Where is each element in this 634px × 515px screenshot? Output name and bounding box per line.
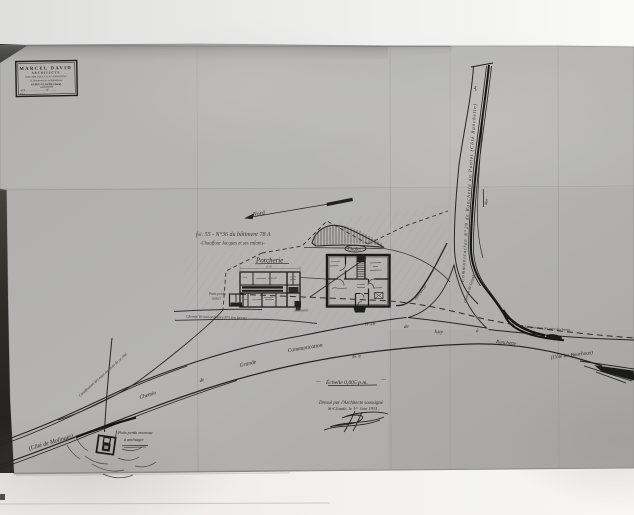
svg-text:SAINT-CLAUDE (Jura): SAINT-CLAUDE (Jura) <box>31 82 61 87</box>
svg-text:Puits perdu: Puits perdu <box>208 292 226 296</box>
svg-text:Chalet: Chalet <box>348 248 362 253</box>
svg-text:actuel: actuel <box>212 297 221 301</box>
svg-text:-Chauffour Jacques et ses enfa: -Chauffour Jacques et ses enfants- <box>200 242 265 247</box>
svg-text:N°20: N°20 <box>364 322 376 328</box>
svg-text:Puits perdu nouveau: Puits perdu nouveau <box>117 430 153 435</box>
svg-text:Mur: Mur <box>484 198 489 206</box>
svg-text:ARCHITECTE: ARCHITECTE <box>31 70 60 75</box>
svg-text:—: — <box>315 379 321 385</box>
svg-text:Abreuvoir: Abreuvoir <box>293 309 309 313</box>
svg-text:Juzy: Juzy <box>434 330 444 335</box>
svg-text:Plan..........................: Plan................................. <box>20 93 48 96</box>
svg-text:21.00: 21.00 <box>266 266 273 269</box>
svg-text:45. m: 45. m <box>352 353 362 359</box>
svg-text:—: — <box>380 377 386 383</box>
svg-text:à aménager: à aménager <box>124 437 144 442</box>
svg-text:AFF...........................: AFF............................. N°.....… <box>20 89 56 93</box>
svg-text:fol. 55 - N°36 du bâtiment 78: fol. 55 - N°36 du bâtiment 78 A <box>196 231 271 238</box>
